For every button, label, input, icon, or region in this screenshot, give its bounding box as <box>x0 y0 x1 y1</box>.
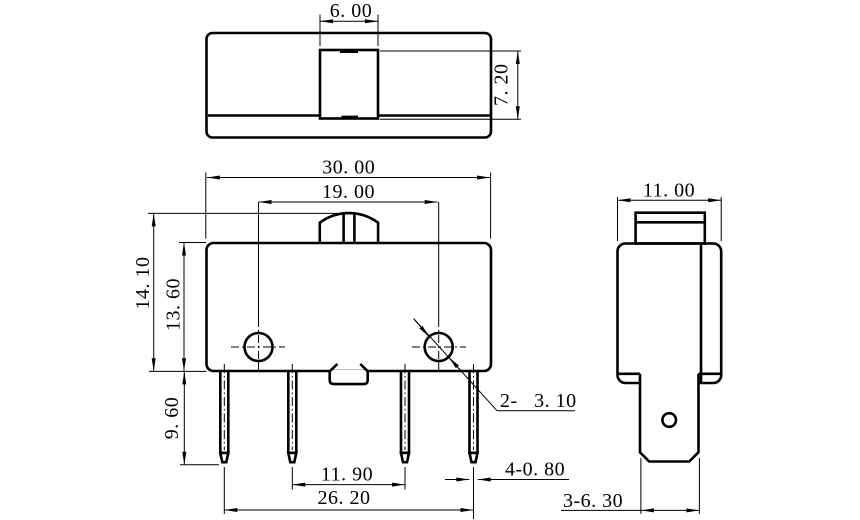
svg-text:26. 20: 26. 20 <box>318 487 371 509</box>
svg-text:13. 60: 13. 60 <box>163 278 185 331</box>
svg-text:19. 00: 19. 00 <box>322 181 375 203</box>
svg-text:2- 3. 10: 2- 3. 10 <box>500 390 577 412</box>
svg-text:14. 10: 14. 10 <box>132 257 154 310</box>
svg-text:11. 90: 11. 90 <box>321 464 373 486</box>
svg-text:7. 20: 7. 20 <box>490 63 512 106</box>
svg-text:6. 00: 6. 00 <box>330 0 373 22</box>
svg-text:4-0. 80: 4-0. 80 <box>505 458 565 480</box>
svg-text:30. 00: 30. 00 <box>322 156 375 178</box>
svg-text:3-6. 30: 3-6. 30 <box>563 490 623 512</box>
svg-text:11. 00: 11. 00 <box>643 179 695 201</box>
svg-text:9. 60: 9. 60 <box>161 397 183 440</box>
